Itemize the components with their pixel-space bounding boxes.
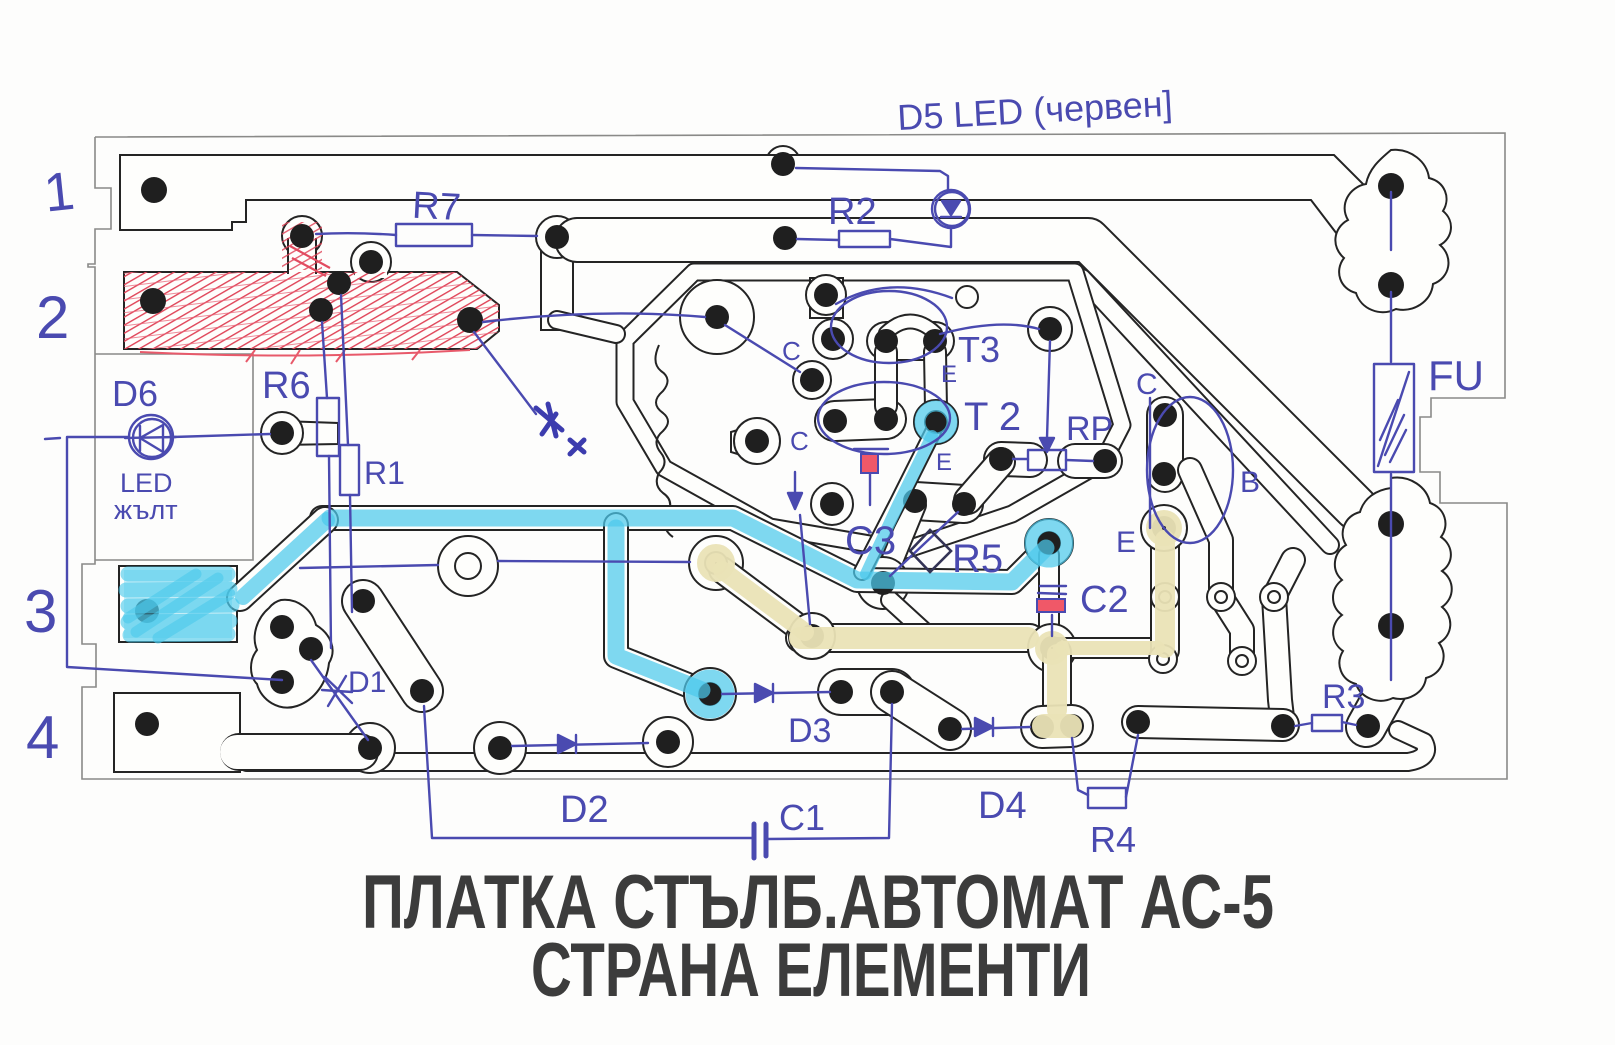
svg-text:LED: LED — [120, 468, 173, 498]
svg-text:2: 2 — [36, 284, 69, 351]
svg-text:E: E — [1116, 526, 1136, 559]
svg-text:R6: R6 — [262, 365, 311, 407]
svg-text:3: 3 — [24, 578, 57, 645]
svg-text:1: 1 — [41, 161, 77, 224]
svg-text:C: C — [782, 336, 801, 366]
svg-text:D2: D2 — [560, 789, 609, 831]
svg-text:T 2: T 2 — [964, 395, 1021, 439]
svg-text:RP: RP — [1066, 410, 1113, 448]
svg-text:FU: FU — [1428, 352, 1484, 399]
svg-text:R1: R1 — [364, 455, 405, 491]
svg-text:СТРАНА ЕЛЕМЕНТИ: СТРАНА ЕЛЕМЕНТИ — [531, 928, 1091, 1013]
svg-text:R7: R7 — [411, 185, 462, 229]
svg-text:R3: R3 — [1322, 678, 1365, 716]
svg-text:4: 4 — [26, 704, 59, 771]
svg-text:D6: D6 — [112, 373, 158, 414]
svg-text:E: E — [941, 361, 957, 388]
svg-text:C2: C2 — [1080, 579, 1129, 621]
svg-text:T3: T3 — [958, 329, 1000, 370]
svg-text:D1: D1 — [348, 666, 386, 699]
svg-text:C: C — [790, 426, 809, 456]
svg-text:R2: R2 — [828, 191, 877, 233]
svg-text:R4: R4 — [1090, 819, 1136, 860]
svg-text:R5: R5 — [952, 537, 1003, 581]
svg-text:D3: D3 — [788, 712, 831, 750]
svg-text:C: C — [1136, 368, 1158, 401]
svg-text:D4: D4 — [978, 785, 1027, 827]
svg-text:C3: C3 — [845, 519, 896, 563]
svg-text:жълт: жълт — [114, 495, 178, 525]
svg-text:B: B — [1240, 466, 1260, 499]
svg-text:C1: C1 — [779, 797, 825, 838]
svg-text:E: E — [936, 449, 952, 476]
